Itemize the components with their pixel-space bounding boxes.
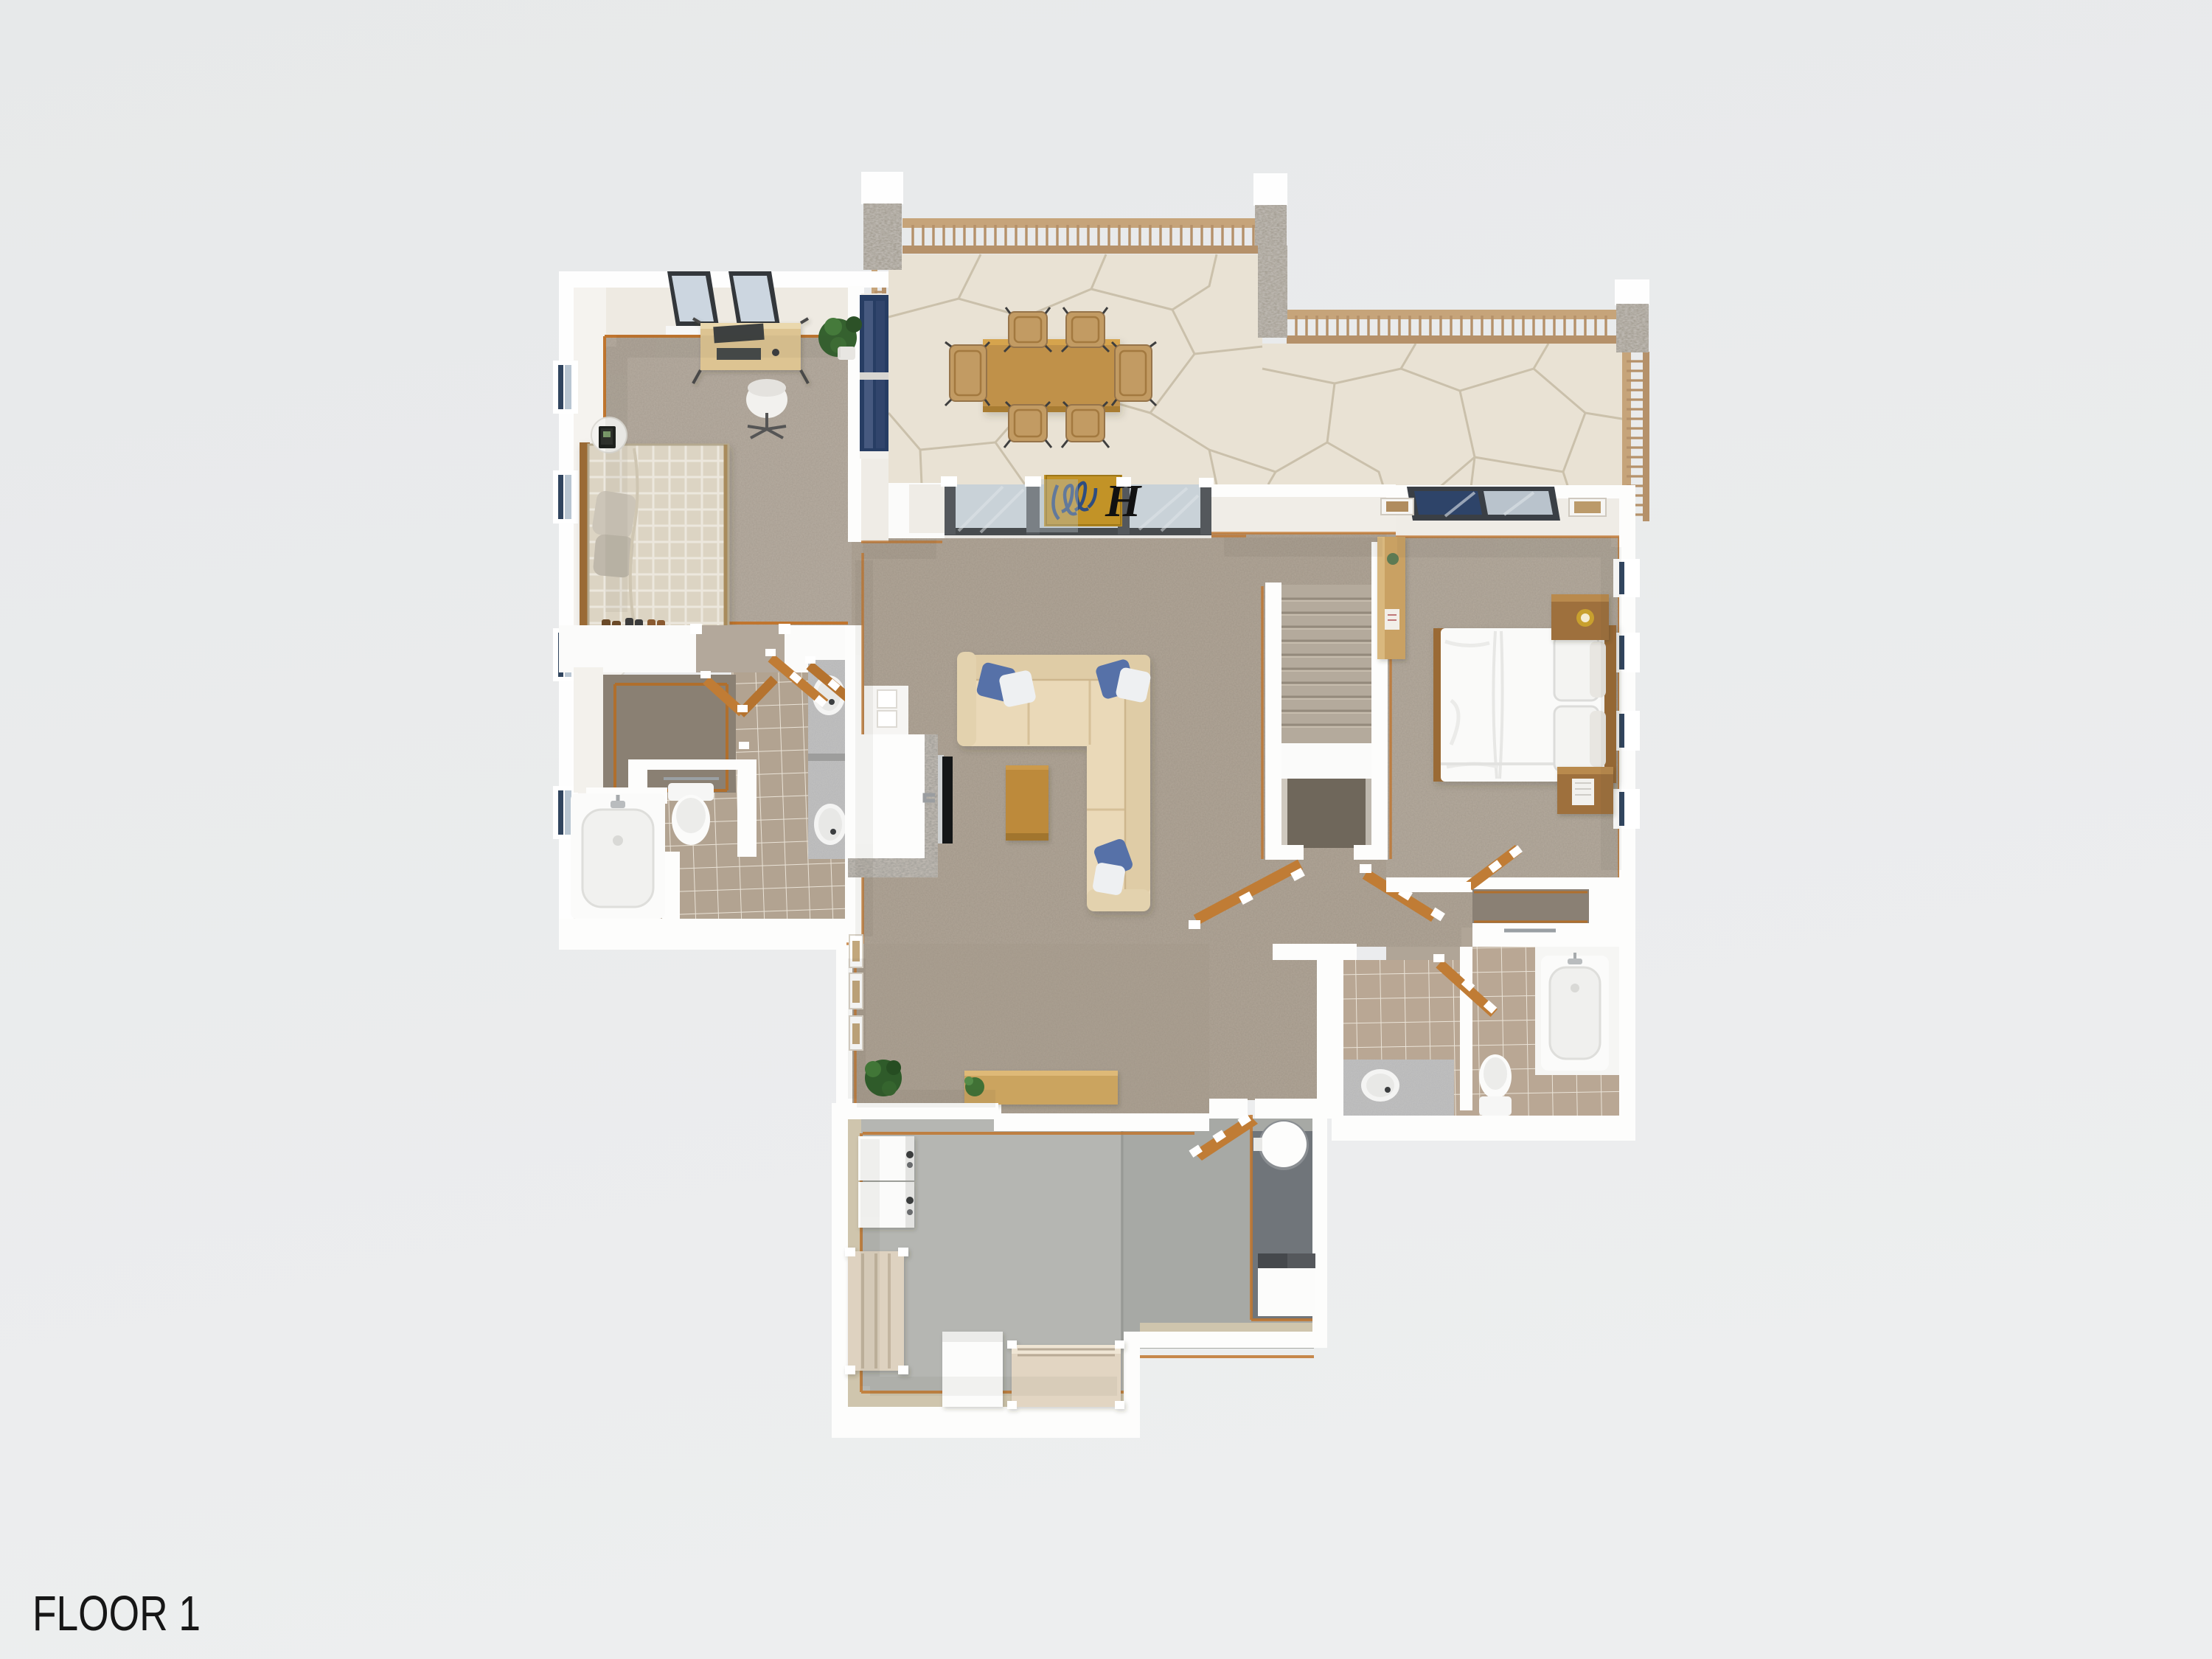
svg-text:FLOOR 1: FLOOR 1 [32, 1586, 201, 1641]
